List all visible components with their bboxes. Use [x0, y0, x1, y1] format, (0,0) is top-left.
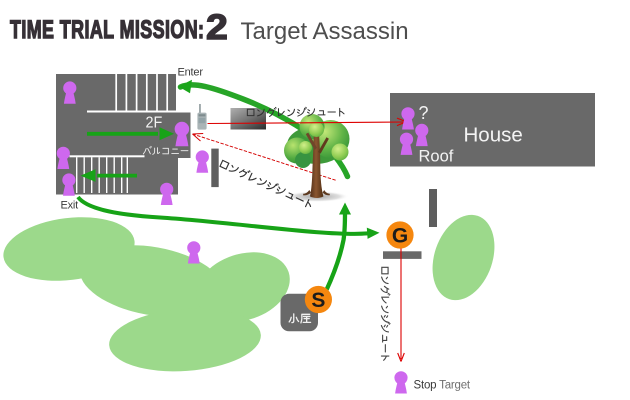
svg-text:2: 2 [206, 7, 228, 47]
svg-text:Exit: Exit [61, 200, 79, 212]
svg-text:S: S [311, 289, 325, 312]
svg-text:Target Assassin: Target Assassin [241, 18, 409, 45]
svg-text:TIME TRIAL MISSION:: TIME TRIAL MISSION: [10, 15, 204, 44]
svg-text:House: House [464, 124, 523, 147]
svg-text:Enter: Enter [178, 67, 204, 79]
svg-text:Stop Target: Stop Target [414, 380, 471, 392]
svg-text:Roof: Roof [419, 148, 454, 166]
svg-text:?: ? [419, 103, 429, 123]
svg-text:G: G [392, 225, 408, 248]
